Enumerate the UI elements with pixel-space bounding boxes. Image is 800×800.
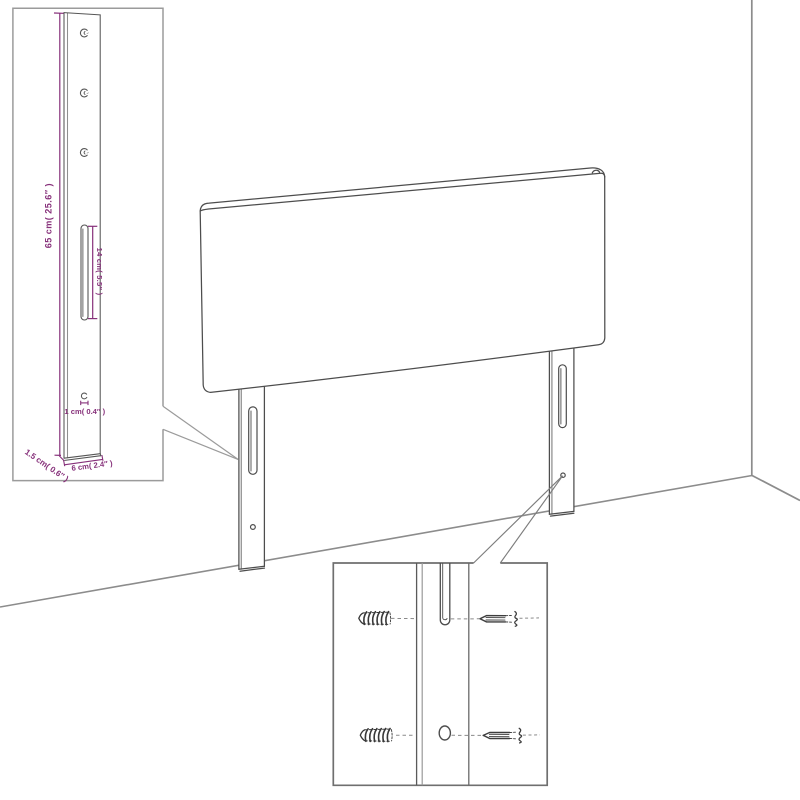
svg-text:1 cm( 0.4″ ): 1 cm( 0.4″ ) (64, 407, 105, 416)
svg-text:14 cm( 5.5″ ): 14 cm( 5.5″ ) (95, 248, 104, 296)
svg-text:65 cm( 25.6″ ): 65 cm( 25.6″ ) (43, 183, 53, 248)
